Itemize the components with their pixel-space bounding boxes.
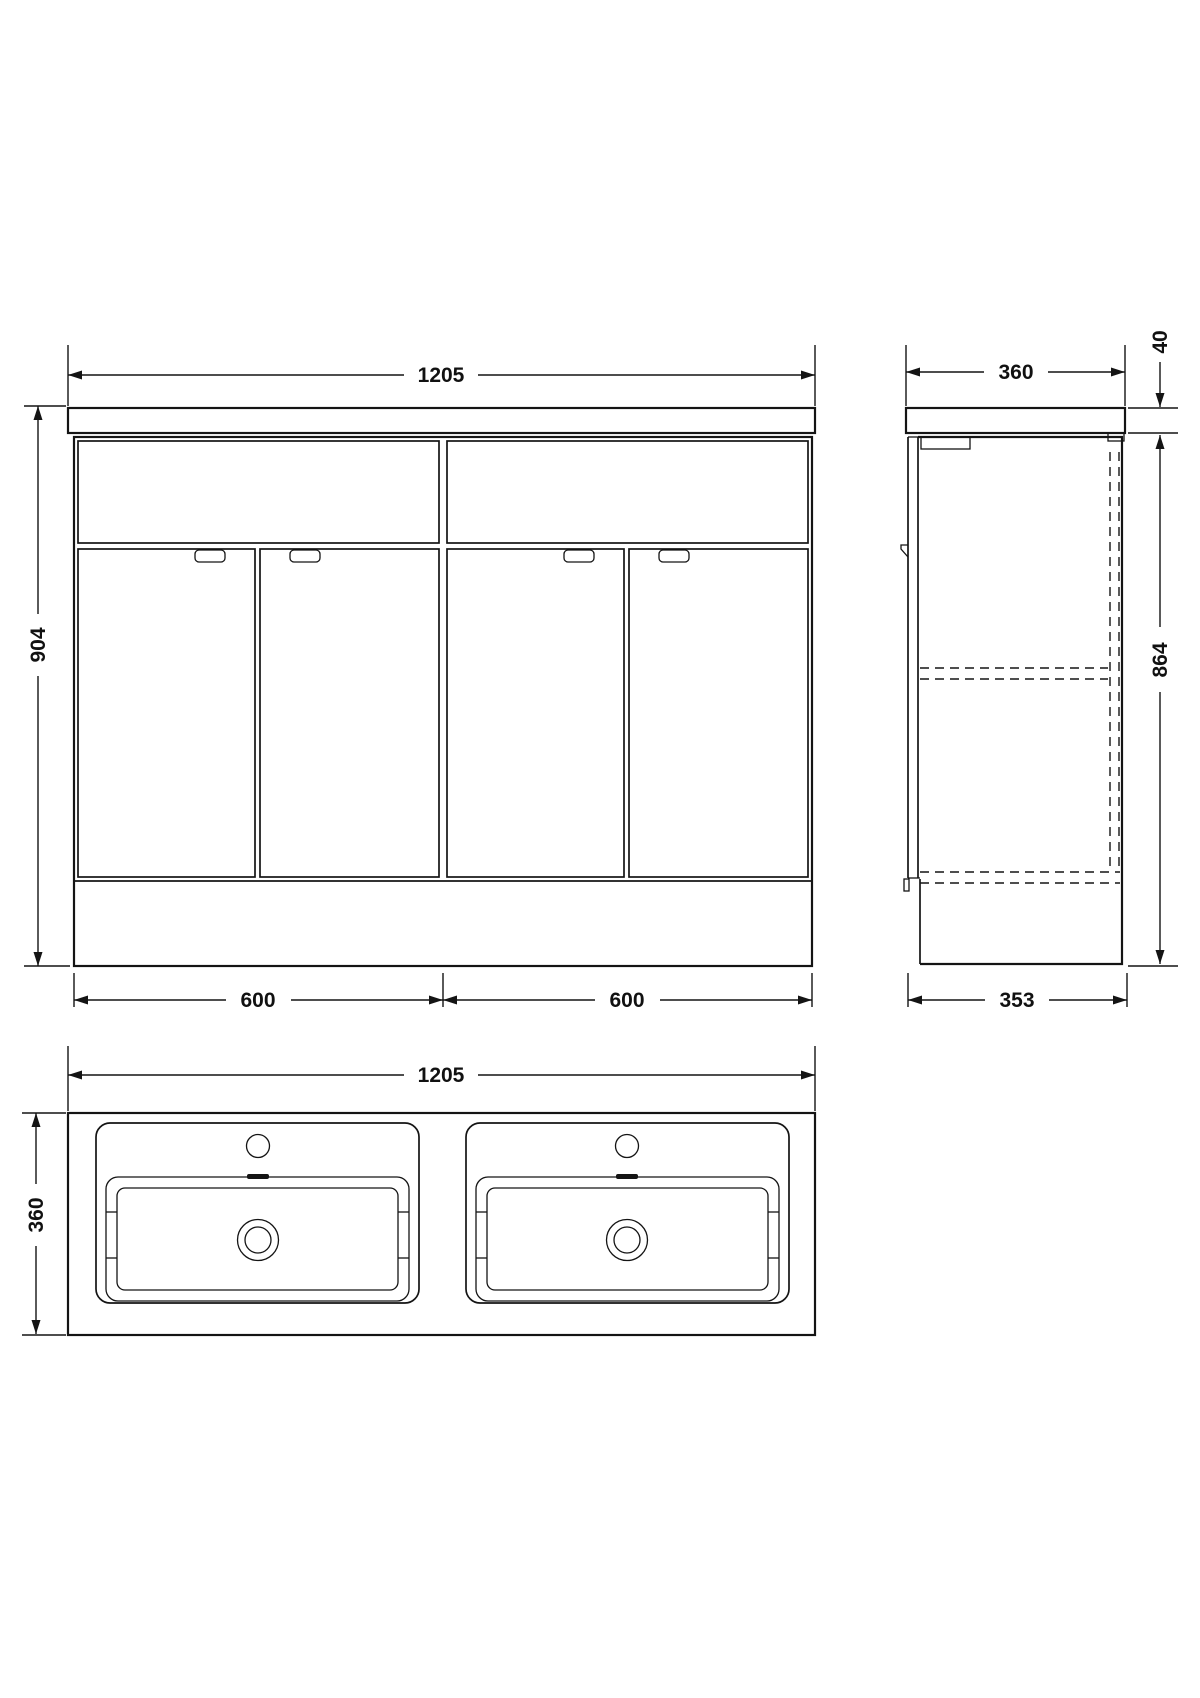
dim-label-left-unit: 600	[240, 989, 275, 1012]
dim-label-front-width: 1205	[418, 364, 465, 387]
front-drawer-left	[78, 441, 439, 543]
dim-label-cabinet-height: 864	[1149, 642, 1172, 677]
dim-label-right-unit: 600	[609, 989, 644, 1012]
dim-label-plan-width: 1205	[418, 1064, 465, 1087]
dim-label-worktop-thickness: 40	[1149, 330, 1172, 353]
plan-basin-right	[466, 1123, 789, 1303]
side-worktop	[906, 408, 1125, 433]
front-door-3	[447, 549, 624, 877]
front-door-1	[78, 549, 255, 877]
dim-label-side-depth: 360	[998, 361, 1033, 384]
vanity-dimension-diagram: 1205 904	[0, 0, 1200, 1698]
front-worktop	[68, 408, 815, 433]
dim-label-plinth-depth: 353	[999, 989, 1034, 1012]
front-door-2	[260, 549, 439, 877]
front-view: 1205 904	[24, 345, 815, 1012]
basin-left-deck	[96, 1123, 419, 1303]
front-drawer-right	[447, 441, 808, 543]
front-door-4	[629, 549, 808, 877]
dim-label-front-height: 904	[27, 627, 50, 662]
technical-drawing-page: 1205 904	[0, 0, 1200, 1698]
dim-label-plan-depth: 360	[25, 1197, 48, 1232]
basin-right-deck	[466, 1123, 789, 1303]
plan-basin-left	[96, 1123, 419, 1303]
